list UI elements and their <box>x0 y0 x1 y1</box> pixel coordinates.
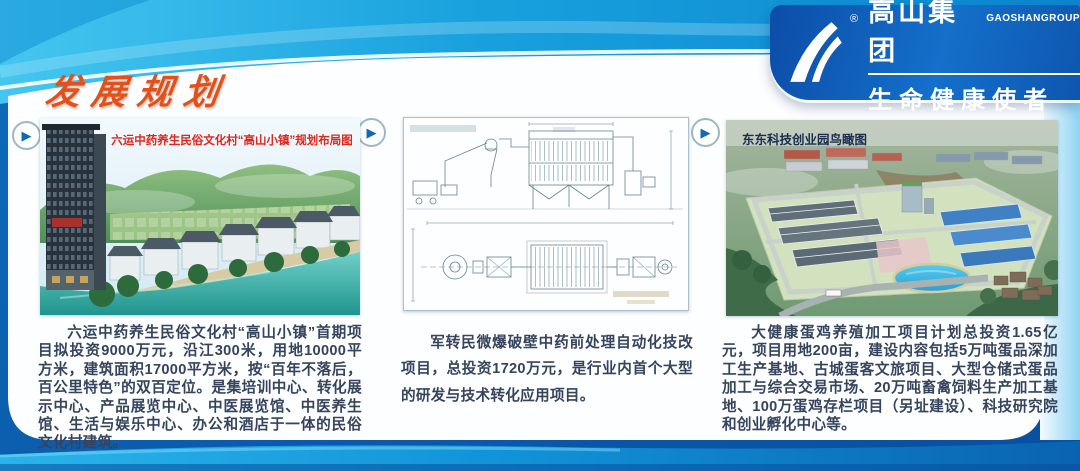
panel1-arrow-icon: ▶ <box>12 121 41 150</box>
poster: ® 高山集团 GAOSHANGROUP 生命健康使者 发展规划 ▶ ▶ ▶ <box>0 0 1080 471</box>
panel3-caption: 东东科技创业园鸟瞰图 <box>742 132 867 147</box>
panel1-image: 六运中药养生民俗文化村“高山小镇”规划布局图 <box>40 118 360 315</box>
gaoshan-logo-icon <box>784 20 846 86</box>
science-park-rendering: 东东科技创业园鸟瞰图 <box>726 120 1058 316</box>
panel2-arrow-icon: ▶ <box>357 118 386 147</box>
panel3-description: 大健康蛋鸡养殖加工项目计划总投资1.65亿元，项目用地200亩，建设内容包括5万… <box>722 324 1058 434</box>
panel2-description: 军转民微爆破壁中药前处理自动化技改项目，总投资1720万元，是行业内首个大型的研… <box>401 330 693 409</box>
panel1-caption: 六运中药养生民俗文化村“高山小镇”规划布局图 <box>111 133 353 147</box>
panel3-image: 东东科技创业园鸟瞰图 <box>726 120 1058 316</box>
brand-slogan: 生命健康使者 <box>868 80 1080 115</box>
panel2-image <box>403 117 689 311</box>
brand-name-en: GAOSHANGROUP <box>986 13 1080 24</box>
technical-drawing <box>403 117 689 311</box>
truck <box>826 290 841 296</box>
hotel-tower <box>42 124 106 290</box>
village-rendering: 六运中药养生民俗文化村“高山小镇”规划布局图 <box>40 118 360 315</box>
registered-trademark: ® <box>850 13 858 25</box>
brand-text-block: 高山集团 GAOSHANGROUP 生命健康使者 <box>868 0 1080 115</box>
drawing-title-block <box>410 125 476 132</box>
panel3-arrow-icon: ▶ <box>691 118 720 147</box>
brand-logo-panel: ® 高山集团 GAOSHANGROUP 生命健康使者 <box>770 5 1080 100</box>
panel1-description: 六运中药养生民俗文化村“高山小镇”首期项目拟投资9000万元，沿江300米，用地… <box>38 324 362 453</box>
drawing-footnote <box>613 291 669 297</box>
bottom-edge <box>0 464 1080 471</box>
page-title: 发展规划 <box>42 64 233 115</box>
brand-name: 高山集团 <box>868 0 979 68</box>
